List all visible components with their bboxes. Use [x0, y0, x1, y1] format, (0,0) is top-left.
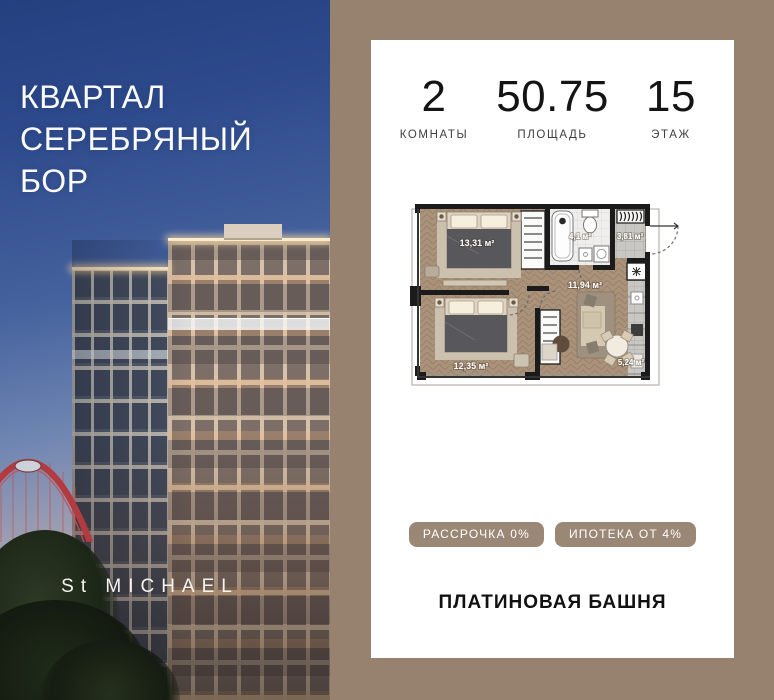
- floor-plan-image: 13,31 м² 4,1 м² 3,81 м² 11,94 м² 12,35 м…: [409, 196, 697, 396]
- room-area-label: 5,24 м²: [618, 358, 645, 367]
- stat-value: 15: [634, 72, 708, 122]
- penthouse-block: [224, 224, 282, 240]
- stat-label: ПЛОЩАДЬ: [496, 129, 609, 141]
- room-area-label: 13,31 м²: [460, 238, 495, 248]
- roof-lights: [72, 267, 168, 270]
- wardrobe: [521, 211, 545, 269]
- bedroom-1-furniture: [425, 212, 521, 286]
- room-area-label: 12,35 м²: [454, 361, 489, 371]
- apartment-card: 2 КОМНАТЫ 50.75 ПЛОЩАДЬ 15 ЭТАЖ: [371, 40, 734, 658]
- mortgage-badge[interactable]: ИПОТЕКА ОТ 4%: [555, 522, 696, 547]
- room-area-label: 11,94 м²: [568, 280, 602, 290]
- bedroom-2-furniture: [435, 298, 529, 367]
- stat-label: ЭТАЖ: [634, 129, 708, 141]
- info-panel: 2 КОМНАТЫ 50.75 ПЛОЩАДЬ 15 ЭТАЖ: [330, 0, 774, 700]
- offer-badges: РАССРОЧКА 0% ИПОТЕКА ОТ 4%: [371, 522, 734, 547]
- brand-logo: St MICHAEL: [0, 576, 300, 598]
- stat-area: 50.75 ПЛОЩАДЬ: [496, 72, 609, 141]
- project-title-line: БОР: [20, 160, 252, 202]
- installment-badge[interactable]: РАССРОЧКА 0%: [409, 522, 544, 547]
- hob-icon: [627, 263, 646, 280]
- stat-label: КОМНАТЫ: [397, 129, 471, 141]
- coat-rack: [617, 210, 644, 223]
- red-bridge-graphic: [0, 412, 95, 542]
- project-title-line: КВАРТАЛ: [20, 76, 252, 118]
- stat-value: 2: [397, 72, 471, 122]
- stat-value: 50.75: [496, 72, 609, 122]
- floor-plan: 13,31 м² 4,1 м² 3,81 м² 11,94 м² 12,35 м…: [409, 196, 697, 396]
- tower-right-facade: [168, 240, 330, 700]
- stats-row: 2 КОМНАТЫ 50.75 ПЛОЩАДЬ 15 ЭТАЖ: [397, 72, 708, 141]
- room-area-label: 4,1 м²: [569, 232, 591, 241]
- tower-graphic: [72, 240, 330, 700]
- stat-rooms: 2 КОМНАТЫ: [397, 72, 471, 141]
- stat-floor: 15 ЭТАЖ: [634, 72, 708, 141]
- building-photo: КВАРТАЛ СЕРЕБРЯНЫЙ БОР St MICHAEL: [0, 0, 330, 700]
- project-title: КВАРТАЛ СЕРЕБРЯНЫЙ БОР: [20, 76, 252, 203]
- listing-banner: КВАРТАЛ СЕРЕБРЯНЫЙ БОР St MICHAEL 2 КОМН…: [0, 0, 774, 700]
- balcony-band: [168, 318, 330, 330]
- room-area-label: 3,81 м²: [617, 232, 644, 241]
- balcony-band: [72, 350, 168, 359]
- tower-title: ПЛАТИНОВАЯ БАШНЯ: [371, 592, 734, 614]
- project-title-line: СЕРЕБРЯНЫЙ: [20, 118, 252, 160]
